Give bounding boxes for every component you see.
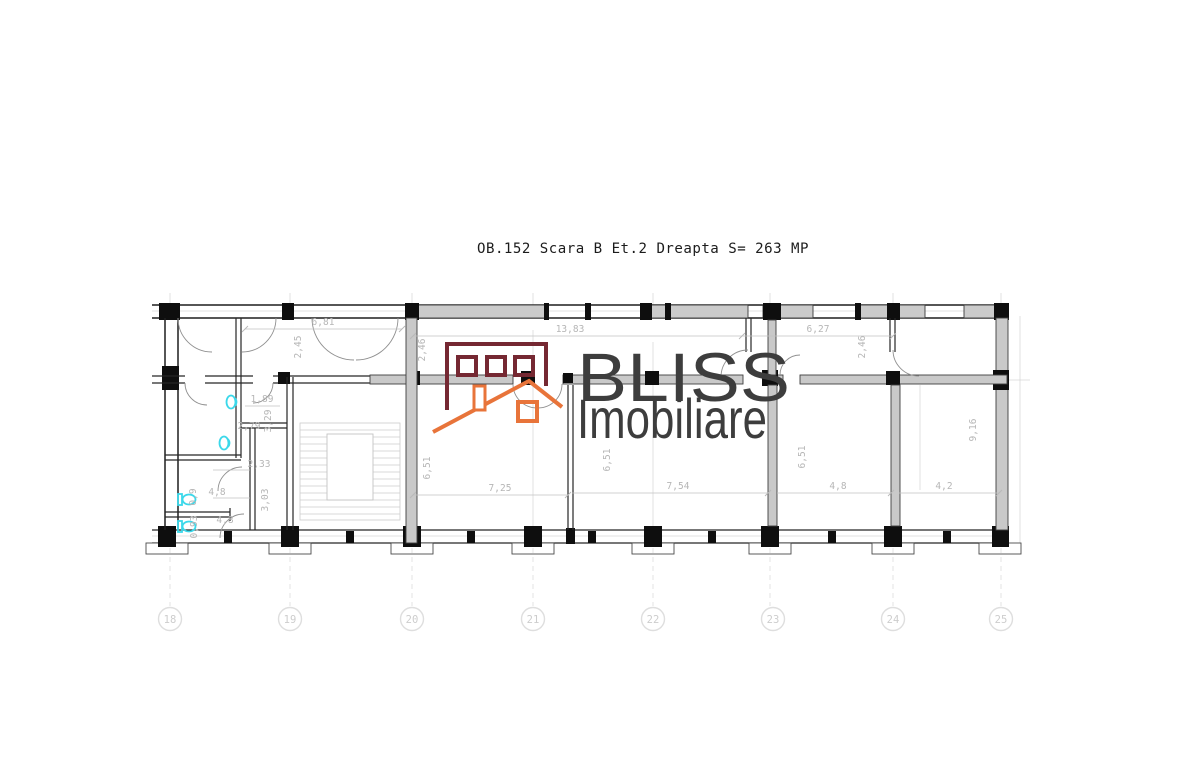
dim-label: 6,51 bbox=[602, 448, 613, 471]
dim-label: 4,2 bbox=[935, 481, 952, 492]
dim-label: 0,9 bbox=[188, 488, 199, 505]
dim-label: 2,46 bbox=[417, 338, 428, 361]
floor-plan-page: OB.152 Scara B Et.2 Dreapta S= 263 MP bbox=[0, 0, 1200, 777]
grid-axis-label: 18 bbox=[164, 614, 177, 626]
dim-label: 9,16 bbox=[968, 418, 979, 441]
dim-label: 0,93 bbox=[189, 516, 200, 539]
dim-label: 2,79 bbox=[238, 421, 261, 432]
staircase bbox=[300, 423, 400, 520]
watermark: BLISS Imobiliare bbox=[433, 339, 790, 450]
sink-icon bbox=[227, 396, 236, 409]
grid-axis-label: 19 bbox=[284, 614, 297, 626]
dim-label: 13,83 bbox=[556, 324, 585, 335]
grid-axis-label: 21 bbox=[527, 614, 540, 626]
plan-title: OB.152 Scara B Et.2 Dreapta S= 263 MP bbox=[477, 241, 809, 257]
door-arcs bbox=[178, 318, 919, 538]
bliss-house-logo-icon bbox=[433, 344, 562, 432]
dim-label: 1,89 bbox=[251, 394, 274, 405]
grid-axes: 18 19 20 21 22 23 24 25 bbox=[159, 548, 1013, 631]
dim-label: 4,8 bbox=[829, 481, 846, 492]
dim-label: 2,33 bbox=[248, 459, 271, 470]
dim-label: 3,03 bbox=[260, 489, 271, 512]
dim-label: 6,51 bbox=[797, 445, 808, 468]
dim-label: 6,27 bbox=[807, 324, 830, 335]
dim-label: 2,46 bbox=[857, 335, 868, 358]
dim-label: 6,51 bbox=[422, 456, 433, 479]
dim-label: 6,81 bbox=[312, 317, 335, 328]
floor-plan-drawing: OB.152 Scara B Et.2 Dreapta S= 263 MP bbox=[0, 0, 1200, 777]
grid-axis-label: 20 bbox=[406, 614, 419, 626]
dim-label: 2,45 bbox=[293, 336, 304, 359]
watermark-brand-subtitle: Imobiliare bbox=[577, 387, 767, 450]
top-wall bbox=[152, 303, 1009, 320]
dim-label: 4,8 bbox=[216, 515, 233, 526]
grid-axis-label: 24 bbox=[887, 614, 900, 626]
bottom-wall bbox=[146, 526, 1021, 554]
sink-icon bbox=[220, 437, 229, 450]
grid-axis-label: 25 bbox=[995, 614, 1008, 626]
dim-label: 7,54 bbox=[667, 481, 690, 492]
grid-axis-label: 23 bbox=[767, 614, 780, 626]
grid-axis-label: 22 bbox=[647, 614, 660, 626]
dim-label: 4,8 bbox=[208, 487, 225, 498]
dim-label: 7,25 bbox=[489, 483, 512, 494]
dim-label: 3,29 bbox=[263, 409, 274, 432]
